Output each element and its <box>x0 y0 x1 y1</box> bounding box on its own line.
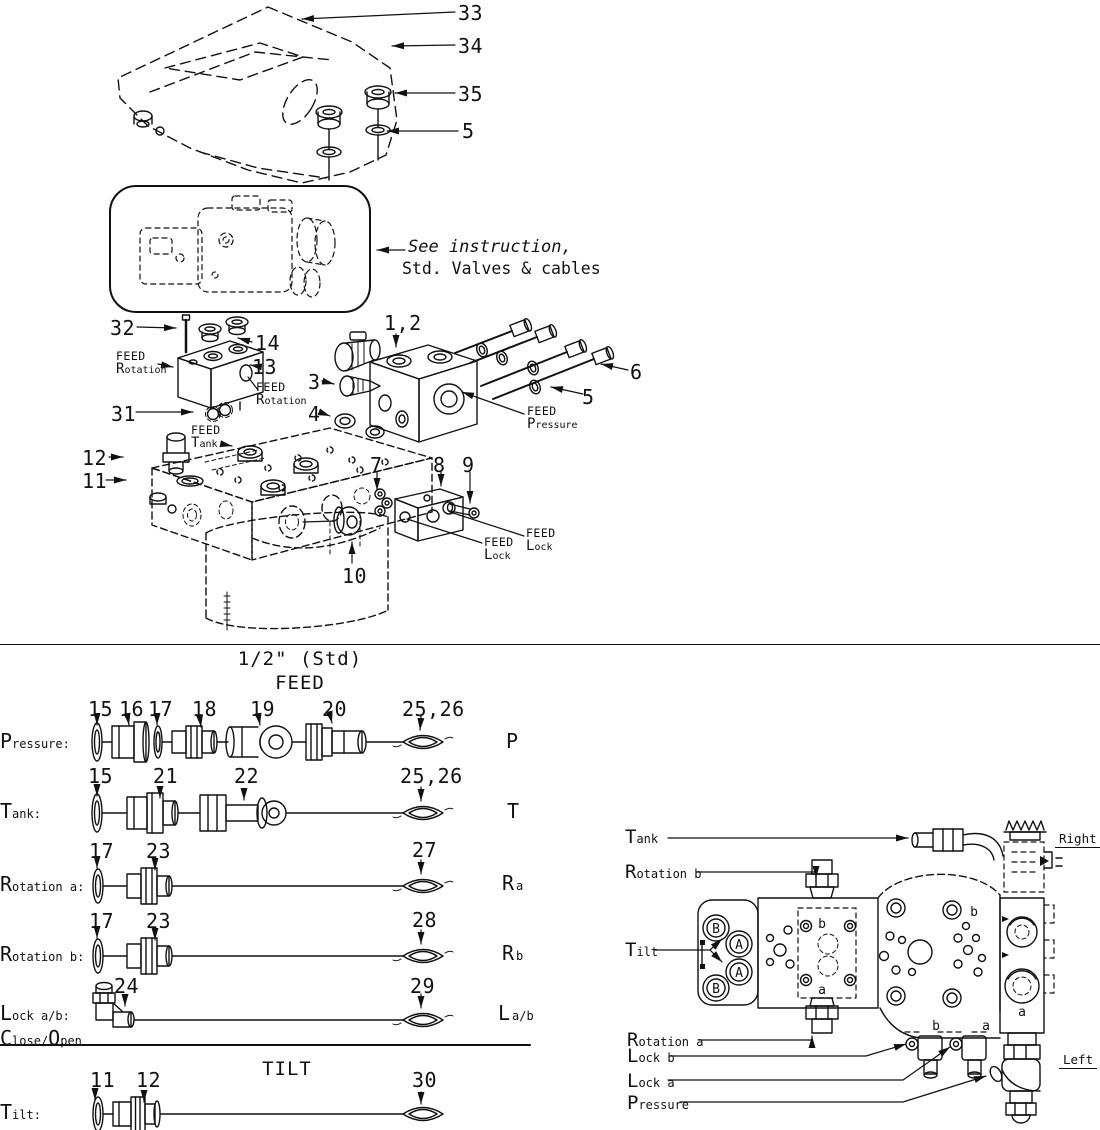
port-letter-p: P <box>506 729 518 753</box>
label-lock-b: Lock b <box>627 1046 675 1068</box>
callout-14: 14 <box>255 331 280 355</box>
port-letter: T <box>507 799 519 823</box>
port-letter-circled-b2: B <box>712 982 720 997</box>
instruction-line1: See instruction, <box>408 237 572 257</box>
port-letter-sub: b <box>516 949 523 963</box>
row-rotation-b-parts <box>93 930 453 974</box>
orientation-left: Left <box>1059 1052 1097 1069</box>
row-label-lock: Lock a/b: <box>0 1002 70 1028</box>
callout-30: 30 <box>412 1068 437 1092</box>
label-tilt: Tilt <box>625 940 658 962</box>
part-12-union <box>163 433 189 474</box>
feed-tank-label: FEED Tank <box>191 424 221 452</box>
tank-fitting <box>912 829 1003 860</box>
callout-16: 16 <box>119 697 144 721</box>
parts-diagram-page: { "top": { "callouts": { "n33": "33", "n… <box>0 0 1100 1130</box>
mounting-bolts <box>455 318 628 399</box>
callout-17: 17 <box>89 909 114 933</box>
callout-34: 34 <box>458 34 483 58</box>
label-lock-a: Lock a <box>627 1071 675 1093</box>
callout-22: 22 <box>234 764 259 788</box>
port-letter: R <box>502 941 514 965</box>
port-letter-ra: Ra <box>502 871 523 895</box>
callout-15: 15 <box>88 697 113 721</box>
row-pressure-parts <box>92 716 453 762</box>
feed-label-line2: Rotation <box>256 393 307 409</box>
block-plugs <box>238 446 318 495</box>
feed-header: FEED <box>205 672 395 694</box>
callout-32: 32 <box>110 316 135 340</box>
callout-33: 33 <box>458 1 483 25</box>
size-header: 1/2" (Std) <box>205 648 395 670</box>
callout-23: 23 <box>146 839 171 863</box>
callout-35: 35 <box>458 82 483 106</box>
relief-valve <box>1004 821 1062 892</box>
port-letter-t: T <box>507 799 519 823</box>
cover-screws <box>316 86 391 180</box>
top-callout-leaders <box>302 12 458 131</box>
feed-lock-label-right: FEED Lock <box>526 527 556 555</box>
callout-4: 4 <box>308 402 321 426</box>
callout-12: 12 <box>136 1068 161 1092</box>
callout-5-mid: 5 <box>582 385 595 409</box>
callout-1-2: 1,2 <box>384 311 422 335</box>
open-label: Open <box>48 1027 82 1053</box>
feed-label-line2: Lock <box>484 548 514 564</box>
valve-body <box>698 860 1054 1038</box>
callout-27: 27 <box>412 838 437 862</box>
solenoid-coil <box>335 332 380 371</box>
port-letter-sub: a <box>516 879 523 893</box>
callout-17: 17 <box>89 839 114 863</box>
callout-17: 17 <box>148 697 173 721</box>
port-letter-right-a: a <box>1018 1005 1026 1020</box>
port-letter-bottom-b: b <box>932 1019 940 1034</box>
callout-13: 13 <box>252 355 277 379</box>
port-letter: P <box>506 729 518 753</box>
tilt-header: TILT <box>192 1058 382 1080</box>
port-letter-bottom-a: a <box>982 1019 990 1034</box>
callout-21: 21 <box>153 764 178 788</box>
row-label-tilt: Tilt: <box>0 1101 41 1127</box>
callout-20: 20 <box>322 697 347 721</box>
callout-3: 3 <box>308 370 321 394</box>
port-letter-lab: La/b <box>498 1001 534 1025</box>
callout-19: 19 <box>250 697 275 721</box>
port-letter-circled-a1: A <box>735 938 743 953</box>
label-rotation-b: Rotation b <box>625 862 701 884</box>
instruction-line2: Std. Valves & cables <box>402 259 601 278</box>
feed-label-line2: Rotation <box>116 362 167 378</box>
callout-28: 28 <box>412 908 437 932</box>
label-pressure: Pressure <box>627 1093 689 1115</box>
cover-panel-outline <box>118 7 397 183</box>
orientation-right: Right <box>1055 831 1100 848</box>
port-letter-plate-a: a <box>818 983 826 998</box>
part-10-plug <box>334 507 361 535</box>
callout-31: 31 <box>111 402 136 426</box>
lock-valve-block <box>375 472 524 543</box>
port-letter-circled-b1: B <box>712 922 720 937</box>
feed-label-line2: Tank <box>191 436 221 452</box>
callout-18: 18 <box>192 697 217 721</box>
callout-29: 29 <box>410 974 435 998</box>
callout-9: 9 <box>462 453 475 477</box>
callout-5-top: 5 <box>462 119 475 143</box>
callout-8: 8 <box>433 453 446 477</box>
callout-24: 24 <box>114 974 139 998</box>
callout-11: 11 <box>82 469 107 493</box>
callout-12: 12 <box>82 446 107 470</box>
valve-cartridge <box>340 376 380 396</box>
callout-15: 15 <box>88 764 113 788</box>
feed-label-line2: Lock <box>526 539 556 555</box>
callout-10: 10 <box>342 564 367 588</box>
row-tank-parts <box>92 787 453 833</box>
port-letter: R <box>502 871 514 895</box>
callout-23: 23 <box>146 909 171 933</box>
port-letter: L <box>498 1001 510 1025</box>
port-letter-circled-a2: A <box>735 966 743 981</box>
row-label-rotation-b: Rotation b: <box>0 943 84 969</box>
row-tilt-parts <box>93 1092 443 1130</box>
assembled-port-letters: B A A B b a b b a a <box>712 905 1026 1034</box>
callout-25-26: 25,26 <box>402 697 465 721</box>
feed-label-line2: Pressure <box>527 417 578 433</box>
lock-elbow-fittings <box>906 1036 986 1078</box>
feed-lock-label-left: FEED Lock <box>484 536 514 564</box>
label-tank: Tank <box>625 827 658 849</box>
instruction-box <box>110 186 405 312</box>
feed-rotation-label-left: FEED Rotation <box>116 350 167 378</box>
pump-sketch <box>140 196 335 297</box>
row-label-rotation-a: Rotation a: <box>0 873 84 899</box>
assembled-leader-lines <box>654 838 986 1102</box>
row-label-close-open: Close/Open <box>0 1027 82 1053</box>
callout-11: 11 <box>90 1068 115 1092</box>
feed-rotation-label-right: FEED Rotation <box>256 381 307 409</box>
callout-25-26: 25,26 <box>400 764 463 788</box>
row-label-tank: Tank: <box>0 800 41 826</box>
row-label-pressure: Pressure: <box>0 730 70 756</box>
pressure-valve-block <box>322 332 524 442</box>
feed-pressure-label: FEED Pressure <box>527 405 578 433</box>
port-letter-mid-b: b <box>970 905 978 920</box>
pressure-elbow-fitting <box>988 1033 1040 1123</box>
main-valve-block <box>106 428 432 560</box>
close-label: Close/ <box>0 1027 48 1053</box>
port-letter-plate-b: b <box>818 917 826 932</box>
callout-7: 7 <box>370 453 383 477</box>
callout-6: 6 <box>630 360 643 384</box>
row-rotation-a-parts <box>93 860 453 904</box>
port-letter-sub: a/b <box>512 1009 534 1023</box>
port-letter-rb: Rb <box>502 941 523 965</box>
